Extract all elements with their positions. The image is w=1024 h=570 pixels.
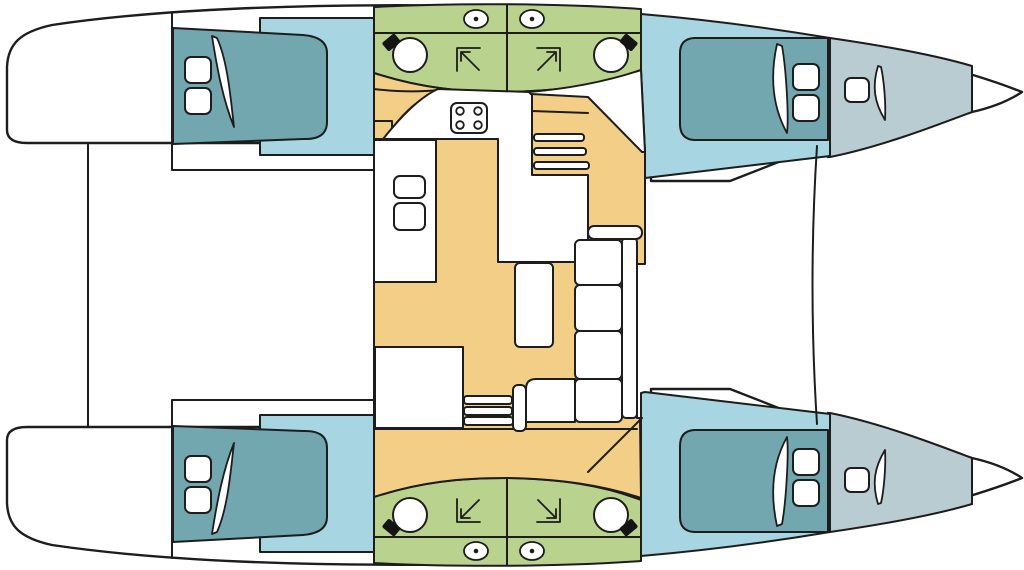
deck-hatch-icon xyxy=(185,57,211,83)
stair-tread xyxy=(464,417,513,425)
deck-hatch-icon xyxy=(185,88,211,114)
sofa-cushion xyxy=(588,226,642,239)
sofa-cushion xyxy=(575,285,622,331)
toilet-flush-dot xyxy=(530,17,535,22)
galley-sink xyxy=(394,176,425,198)
aft-double-berth xyxy=(173,28,327,144)
dining-table xyxy=(515,263,553,347)
sofa-cushion xyxy=(575,331,622,379)
chart-module xyxy=(375,347,463,428)
sofa-cushion xyxy=(575,379,622,422)
burner-icon xyxy=(456,107,464,115)
forward-cabin xyxy=(641,14,830,178)
stairs-bottom-hull xyxy=(464,396,513,425)
burner-icon xyxy=(456,121,464,129)
deck-hatch-icon xyxy=(793,64,819,90)
stove-icon xyxy=(451,103,487,133)
sofa-armrest xyxy=(513,385,526,431)
galley-sink xyxy=(394,203,425,230)
sofa-cushion xyxy=(526,379,575,422)
deck-hatch-icon xyxy=(845,78,869,102)
stair-tread xyxy=(534,148,586,155)
heads-compartments xyxy=(374,4,641,92)
sofa-backrest xyxy=(622,238,637,418)
sofa-cushion xyxy=(575,240,622,285)
catamaran-floor-plan xyxy=(0,0,1024,570)
stair-tread xyxy=(534,162,589,169)
floor-plan-svg xyxy=(0,0,1024,570)
burner-icon xyxy=(474,121,482,129)
stair-tread xyxy=(534,134,584,141)
salon xyxy=(374,70,645,498)
deck-hatch-icon xyxy=(793,95,819,121)
toilet-flush-dot xyxy=(474,17,479,22)
stair-tread xyxy=(464,407,512,415)
burner-icon xyxy=(474,107,482,115)
stair-tread xyxy=(464,396,512,404)
